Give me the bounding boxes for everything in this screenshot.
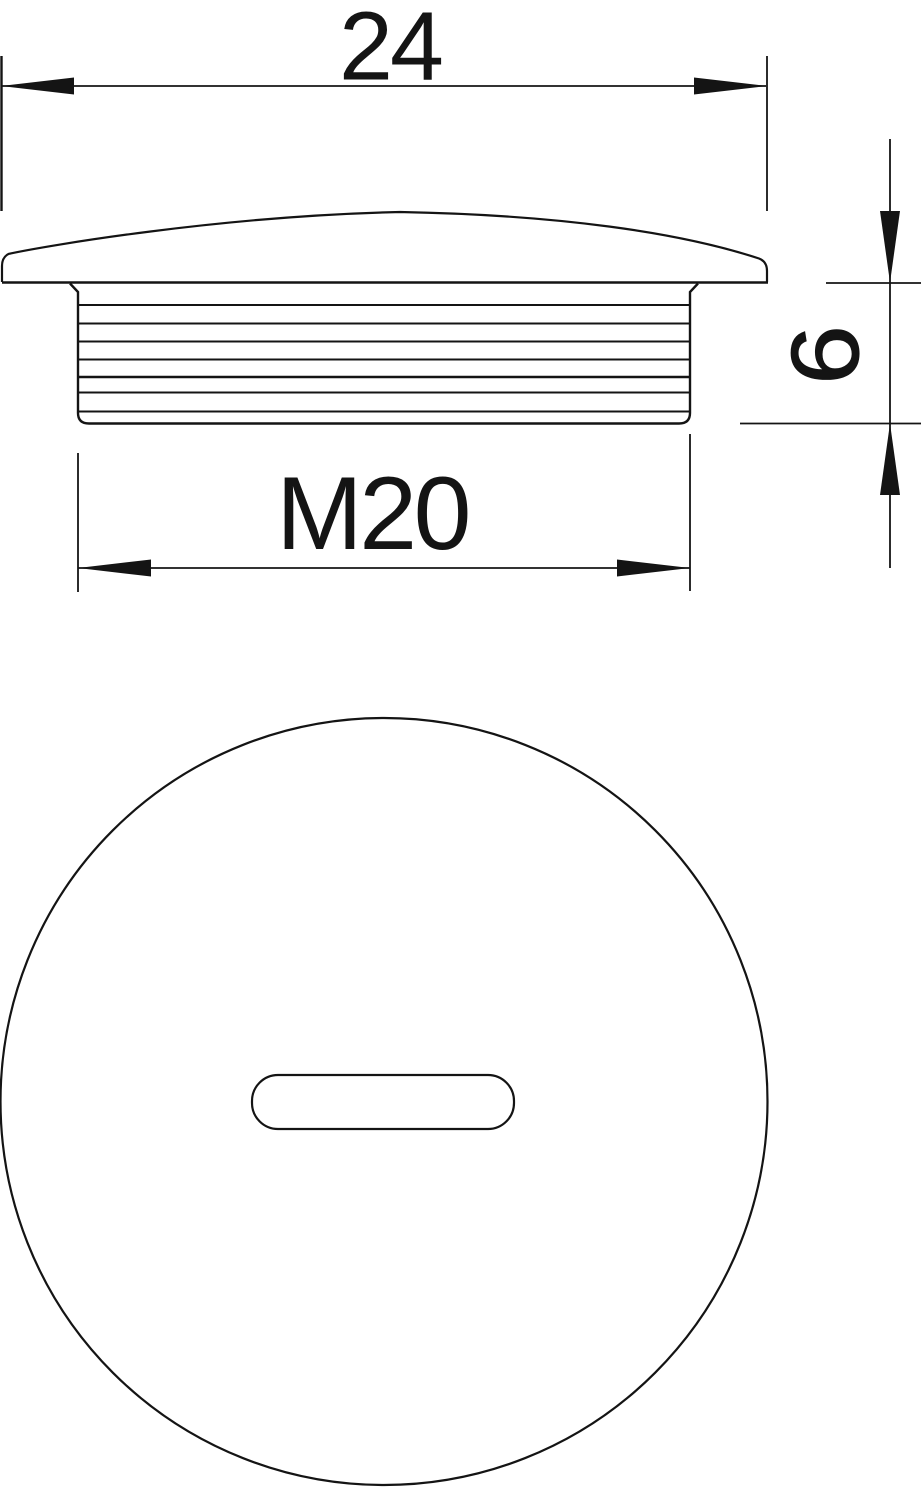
svg-text:6: 6 (771, 325, 879, 385)
svg-text:M20: M20 (276, 456, 468, 572)
